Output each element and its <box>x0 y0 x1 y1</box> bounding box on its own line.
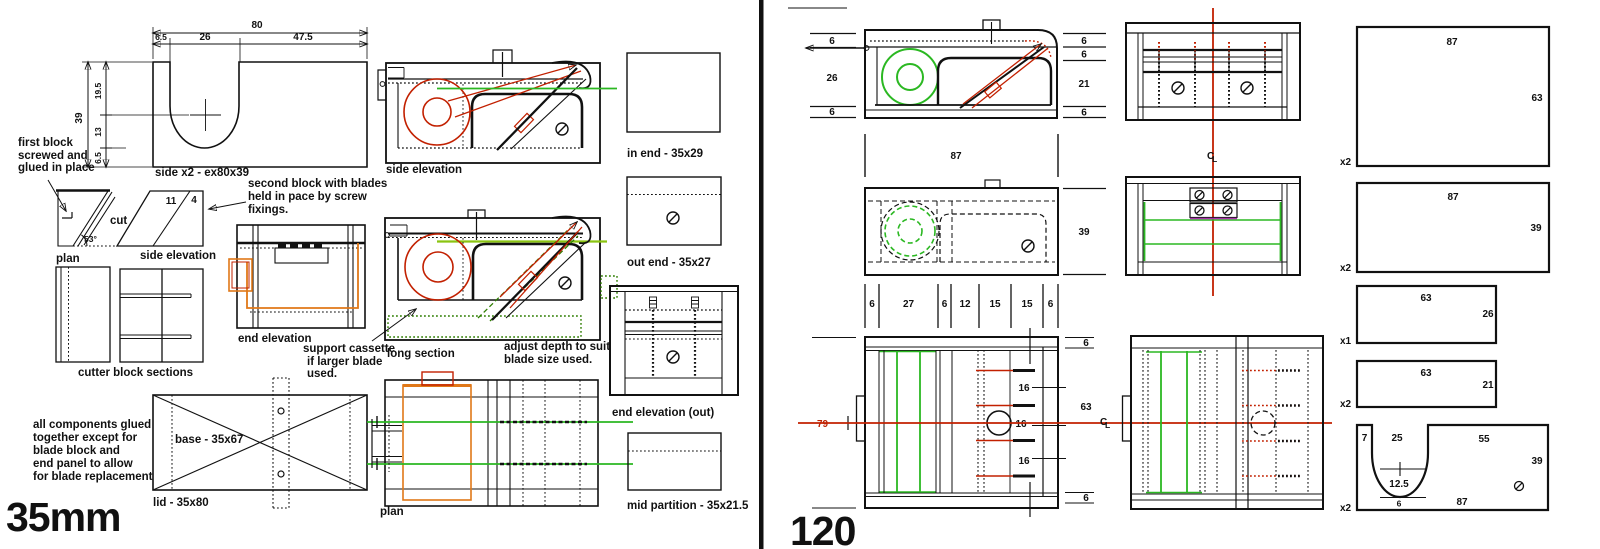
blade-n4: 4 <box>191 195 197 206</box>
handle-tab <box>468 210 485 240</box>
long-section-drawing: long section <box>372 210 617 360</box>
part-u-notch: 7 25 55 12.5 6 87 39 x2 <box>1340 425 1548 514</box>
note-line: if larger blade <box>307 356 382 368</box>
mid-partition-part: mid partition - 35x21.5 <box>627 433 749 512</box>
screw-symbol <box>1223 206 1232 215</box>
dim-21: 21 <box>1078 79 1090 90</box>
dim-6: 6 <box>1048 299 1054 310</box>
end-elevation-drawing: end elevation <box>229 225 365 345</box>
blade-n11: 11 <box>166 196 177 207</box>
screw-symbol <box>1223 191 1232 200</box>
dim-6-5: 6.5 <box>155 32 167 42</box>
dim-16: 16 <box>1018 383 1030 394</box>
part-rect: 63 26 x1 <box>1340 286 1496 347</box>
cutter-sections-label: cutter block sections <box>78 367 193 379</box>
in-end-part: in end - 35x29 <box>627 53 720 160</box>
out-end-part: out end - 35x27 <box>627 177 721 269</box>
note-line: glued in place <box>18 162 95 174</box>
blade-outline <box>519 271 538 290</box>
hidden-side-elevation <box>865 180 1058 275</box>
plan-label: plan <box>380 506 404 518</box>
cutter-block-sections: cutter block sections <box>56 267 203 379</box>
dim-79: 79 <box>817 419 829 430</box>
film-spool-hidden <box>885 206 935 256</box>
cut-label: cut <box>110 215 127 227</box>
side-elevation-label: side elevation <box>386 164 462 176</box>
note-line: fixings. <box>248 204 288 216</box>
dim-63: 63 <box>1080 402 1092 413</box>
dim-6: 6 <box>1083 493 1089 504</box>
cassette-outline <box>403 385 471 500</box>
lid-label: lid - 35x80 <box>153 497 209 509</box>
cl-l: L <box>1212 154 1217 164</box>
part-qty: x2 <box>1340 399 1352 410</box>
support-zone <box>388 316 581 337</box>
part-width: 87 <box>1447 192 1459 203</box>
out-end-label: out end - 35x27 <box>627 257 711 269</box>
part-width: 63 <box>1420 368 1432 379</box>
film-path-lines <box>367 422 633 464</box>
side-elevation-small-label: side elevation <box>140 250 216 262</box>
centerline-symbol: C L C L <box>1100 151 1217 430</box>
screw-symbol <box>667 212 679 224</box>
blade-bars <box>1159 62 1265 107</box>
part-height: 39 <box>1530 223 1542 234</box>
dim-6: 6 <box>829 36 835 47</box>
part-qty: x2 <box>1340 263 1352 274</box>
dim-6: 6 <box>1083 338 1089 349</box>
dim-39: 39 <box>74 112 85 124</box>
dims-top-left: 6 26 6 <box>810 34 856 119</box>
part-height: 26 <box>1482 309 1494 320</box>
cassette-chamber <box>473 244 582 300</box>
film-roll <box>1161 351 1187 493</box>
dim-39: 39 <box>1078 227 1090 238</box>
note-arrow <box>372 309 416 341</box>
blade-outline <box>985 82 1002 98</box>
part-dim: 12.5 <box>1389 479 1409 490</box>
cassette-chamber <box>472 94 582 148</box>
note-arrow <box>48 180 66 211</box>
screw-symbol <box>1515 482 1524 491</box>
dim-87: 87 <box>865 134 1058 177</box>
technical-drawing: 80 6.5 26 47.5 39 19.5 13 6.5 side x2 - … <box>0 0 1600 549</box>
drawing-sheet: 80 6.5 26 47.5 39 19.5 13 6.5 side x2 - … <box>0 0 1600 549</box>
glued-note: all components glued together except for… <box>33 419 153 483</box>
dims-top-right: 6 6 21 6 <box>1063 34 1106 119</box>
dim-87-label: 87 <box>950 151 962 162</box>
blade-ramp <box>960 47 1044 108</box>
support-note: support cassette if larger blade used. a… <box>303 341 610 380</box>
dim-47-5: 47.5 <box>293 32 313 43</box>
part-qty: x1 <box>1340 336 1352 347</box>
dim-80: 80 <box>251 20 263 31</box>
screw-symbol <box>1241 82 1253 94</box>
dim-6: 6 <box>942 299 948 310</box>
dim-13: 13 <box>93 127 103 137</box>
dim-6: 6 <box>1081 108 1087 119</box>
blade-ramp <box>497 68 577 150</box>
note-line: adjust depth to suit <box>504 341 610 353</box>
end-elevation-out-drawing: end elevation (out) <box>610 286 738 419</box>
note-line: all components glued <box>33 419 151 431</box>
mid-partition-label: mid partition - 35x21.5 <box>627 500 749 512</box>
end-elevation-out-label: end elevation (out) <box>612 407 714 419</box>
panel-35mm: 80 6.5 26 47.5 39 19.5 13 6.5 side x2 - … <box>6 20 749 540</box>
film-spool <box>882 49 938 105</box>
part-qty: x2 <box>1340 503 1352 514</box>
dim-16: 16 <box>1015 419 1027 430</box>
dim-26: 26 <box>826 73 838 84</box>
dim-6: 6 <box>829 107 835 118</box>
center-cross <box>190 99 221 131</box>
screw-symbol <box>556 123 568 135</box>
part-dim: 55 <box>1478 434 1490 445</box>
panel-120: 6 26 6 6 6 21 6 87 39 <box>788 8 1549 549</box>
note-line: used. <box>307 368 337 380</box>
part-width: 87 <box>1446 37 1458 48</box>
blade-bars <box>653 310 695 378</box>
plan-label: plan <box>56 253 80 265</box>
part-dim: 6 <box>1397 499 1402 509</box>
dim-39-right: 39 <box>1063 189 1106 275</box>
film-leader <box>963 44 1041 104</box>
note-line: screwed and <box>18 150 88 162</box>
note-arrow <box>209 202 246 209</box>
dim-15: 15 <box>1021 299 1033 310</box>
take-up-chamber <box>938 58 1051 105</box>
base-label: base - 35x67 <box>175 434 243 446</box>
note-line: second block with blades <box>248 178 387 190</box>
screw-symbol <box>1195 206 1204 215</box>
side-elevation-120 <box>806 20 1057 118</box>
part-dim: 7 <box>1362 433 1368 444</box>
blade-holder-notch <box>275 248 328 263</box>
note-line: end panel to allow <box>33 458 133 470</box>
clamp-strip <box>273 378 289 508</box>
part-height: 63 <box>1531 93 1543 104</box>
part-height: 39 <box>1531 456 1543 467</box>
blade-block-drawing: 11 4 side elevation <box>117 191 246 262</box>
note-line: held in pace by screw <box>248 191 367 203</box>
note-line: support cassette <box>303 343 395 355</box>
part-rect: 87 39 x2 <box>1340 183 1549 274</box>
part-rect: 63 21 x2 <box>1340 361 1496 410</box>
film-spool <box>405 234 471 300</box>
side-block-drawing: 80 6.5 26 47.5 39 19.5 13 6.5 side x2 - … <box>74 20 367 179</box>
screw-symbol <box>1172 82 1184 94</box>
part-height: 21 <box>1482 380 1494 391</box>
angle-label: 53° <box>84 234 97 244</box>
note-line: together except for <box>33 432 138 444</box>
in-end-label: in end - 35x29 <box>627 148 703 160</box>
screw-symbol <box>667 351 679 363</box>
dim-6: 6 <box>1081 36 1087 47</box>
title-120: 120 <box>790 508 856 549</box>
dim-27: 27 <box>903 299 915 310</box>
part-rect: 87 63 x2 <box>1340 27 1549 168</box>
part-width: 63 <box>1420 293 1432 304</box>
dim-15: 15 <box>989 299 1001 310</box>
parts-list: 87 63 x2 87 39 x2 63 26 x1 63 21 x2 <box>1340 27 1549 514</box>
cl-l: L <box>1105 420 1110 430</box>
spool-recess <box>881 202 939 260</box>
dim-chain-row: 6 27 6 12 15 15 6 <box>865 284 1058 328</box>
long-section-label: long section <box>387 348 455 360</box>
note-line: blade size used. <box>504 354 592 366</box>
exit-slot-tab <box>857 396 866 441</box>
cassette-outline <box>247 243 358 308</box>
film-roll <box>897 351 920 492</box>
end-elevation-label: end elevation <box>238 333 312 345</box>
caption-side-x2: side x2 - ex80x39 <box>155 167 249 179</box>
dim-19-5: 19.5 <box>93 82 103 99</box>
dim-6: 6 <box>869 299 875 310</box>
part-dim: 25 <box>1391 433 1403 444</box>
screw-symbol <box>1195 191 1204 200</box>
dim-12: 12 <box>959 299 971 310</box>
handle-tab <box>985 180 1000 188</box>
note-line: first block <box>18 137 74 149</box>
lid-base-drawing: base - 35x67 lid - 35x80 <box>153 378 367 509</box>
cut-block-drawing: 53° cut plan <box>56 191 127 266</box>
dim-16: 16 <box>1018 456 1030 467</box>
note-line: for blade replacement <box>33 471 153 483</box>
title-35mm: 35mm <box>6 494 121 540</box>
dim-26: 26 <box>199 32 211 43</box>
panel-divider <box>759 0 764 549</box>
second-block-note: second block with blades held in pace by… <box>248 178 387 216</box>
part-qty: x2 <box>1340 157 1352 168</box>
plan-drawing: plan <box>367 372 633 518</box>
dim-6: 6 <box>1081 50 1087 61</box>
side-elevation-drawing: side elevation <box>378 50 617 176</box>
blade-tips <box>1159 42 1265 62</box>
part-width: 87 <box>1456 497 1468 508</box>
screw-symbol <box>559 277 571 289</box>
first-block-note: first block screwed and glued in place <box>18 137 95 218</box>
chamber-hidden <box>940 214 1046 262</box>
exit-slot-tab <box>1123 396 1132 441</box>
screw-symbol <box>1022 240 1034 252</box>
note-line: blade block and <box>33 445 120 457</box>
cassette-tab <box>422 372 453 385</box>
